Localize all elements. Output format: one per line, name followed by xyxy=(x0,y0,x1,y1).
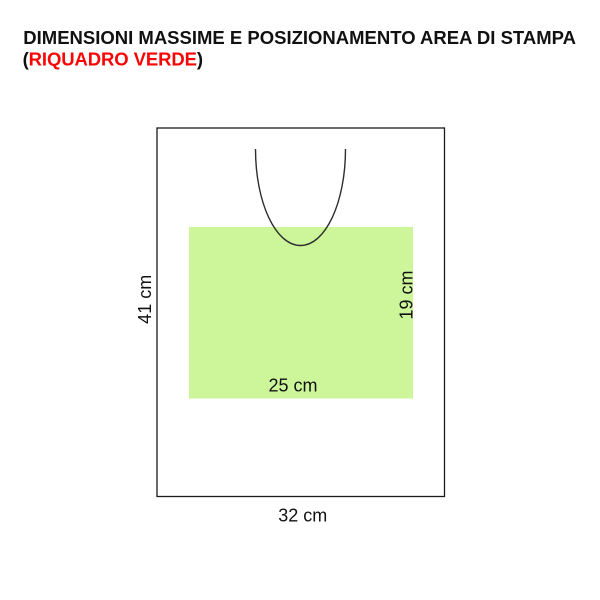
svg-text:25 cm: 25 cm xyxy=(268,376,317,396)
svg-text:32 cm: 32 cm xyxy=(278,505,327,525)
svg-text:19 cm: 19 cm xyxy=(396,270,416,319)
svg-text:DIMENSIONI MASSIME E POSIZIONA: DIMENSIONI MASSIME E POSIZIONAMENTO AREA… xyxy=(23,27,576,48)
svg-text:41 cm: 41 cm xyxy=(135,275,155,324)
svg-text:(RIQUADRO VERDE): (RIQUADRO VERDE) xyxy=(23,48,203,69)
